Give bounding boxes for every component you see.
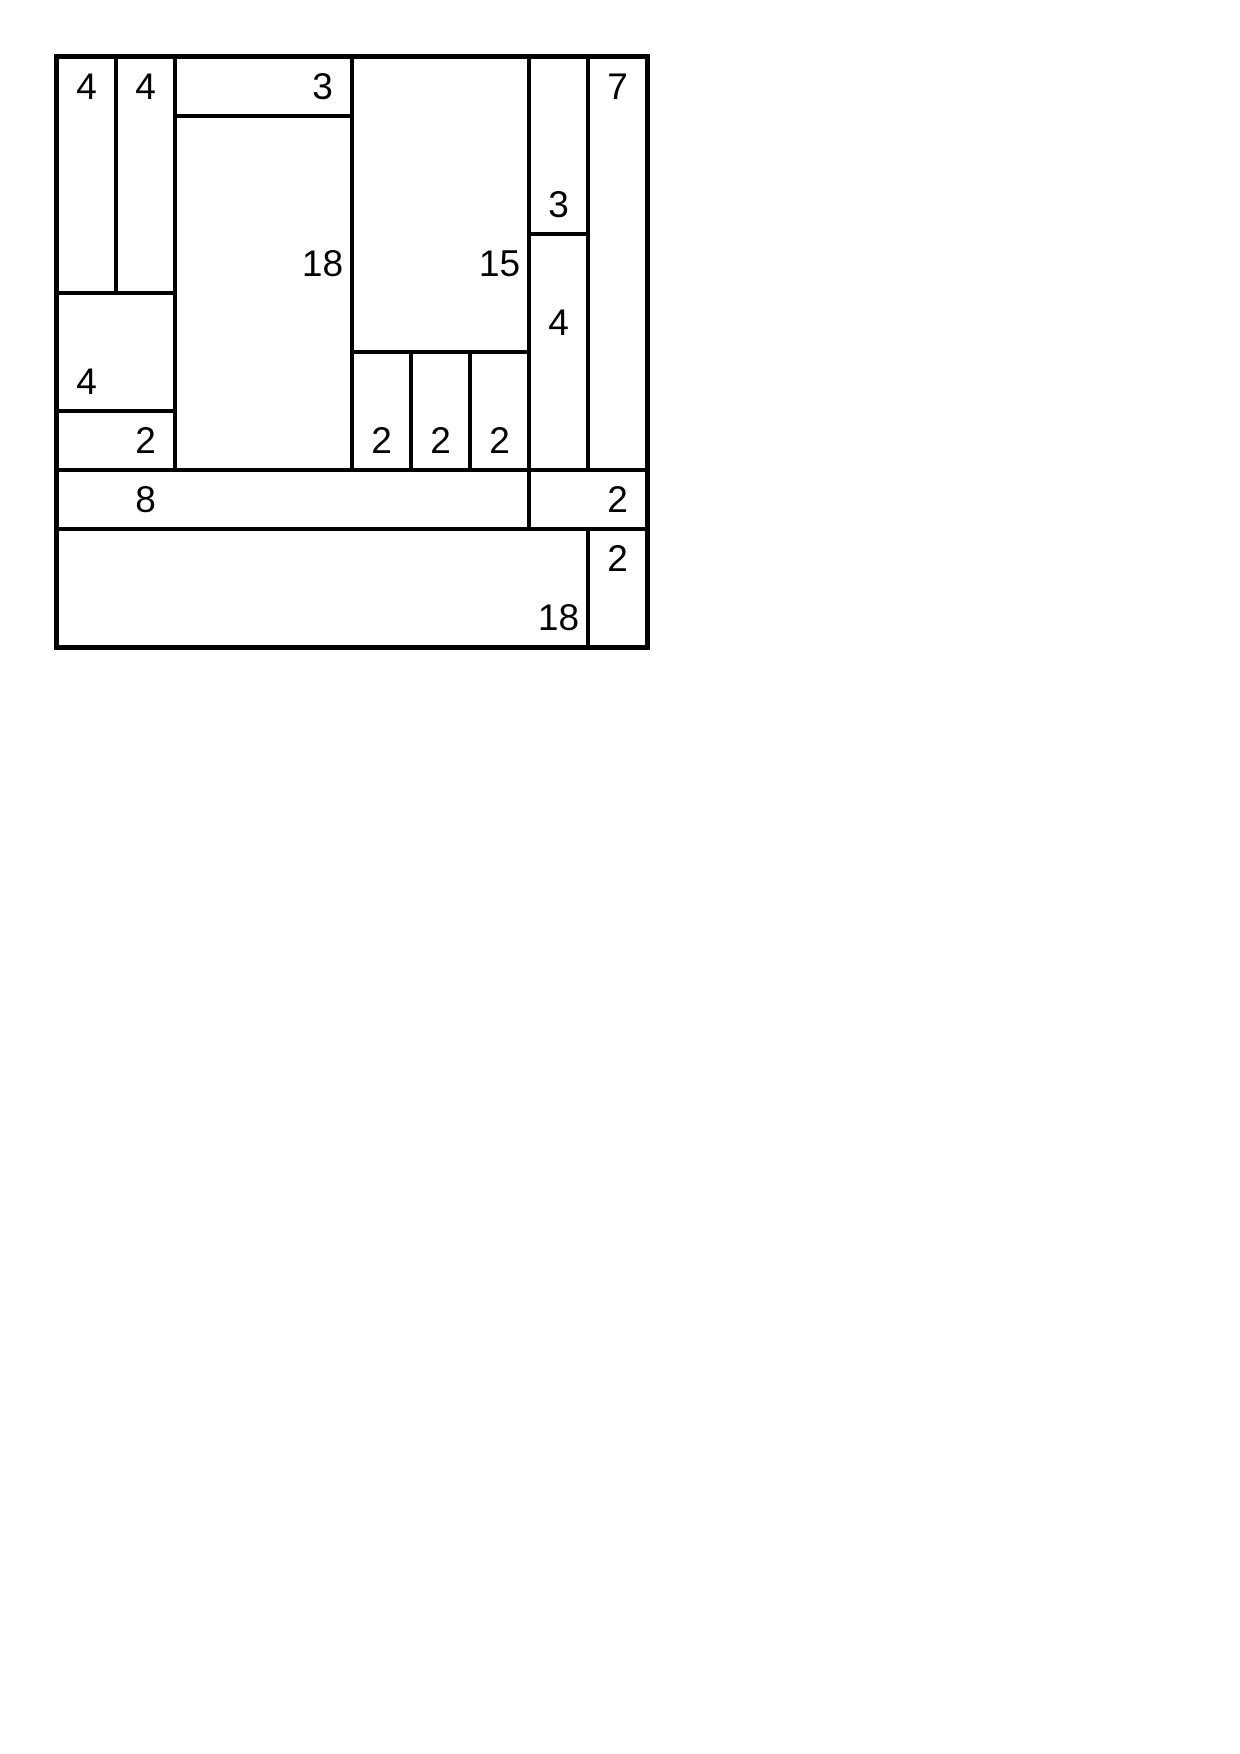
rectangle-area-label: 3 [293, 57, 352, 116]
puzzle-rectangle-16 [57, 529, 588, 647]
rectangle-area-label: 18 [529, 588, 588, 647]
rectangle-area-label: 15 [470, 234, 529, 293]
puzzle-rectangle-5 [352, 57, 529, 352]
puzzle-rectangle-4 [175, 116, 352, 470]
rectangle-area-label: 3 [529, 175, 588, 234]
rectangle-area-label: 4 [529, 293, 588, 352]
rectangle-area-label: 4 [57, 57, 116, 116]
rectangle-area-label: 4 [57, 352, 116, 411]
rectangle-area-label: 7 [588, 57, 647, 116]
rectangle-area-label: 2 [116, 411, 175, 470]
rectangle-area-label: 2 [588, 470, 647, 529]
rectangle-area-label: 2 [411, 411, 470, 470]
worksheet-page: 44318153744222282182 [0, 0, 1240, 1754]
rectangle-dissection-diagram: 44318153744222282182 [54, 54, 650, 650]
rectangle-area-label: 2 [588, 529, 647, 588]
rectangle-area-label: 2 [352, 411, 411, 470]
rectangle-area-label: 8 [116, 470, 175, 529]
puzzle-rectangle-8 [529, 234, 588, 470]
rectangle-area-label: 4 [116, 57, 175, 116]
puzzle-rectangle-7 [588, 57, 647, 470]
rectangle-area-label: 2 [470, 411, 529, 470]
rectangle-area-label: 18 [293, 234, 352, 293]
